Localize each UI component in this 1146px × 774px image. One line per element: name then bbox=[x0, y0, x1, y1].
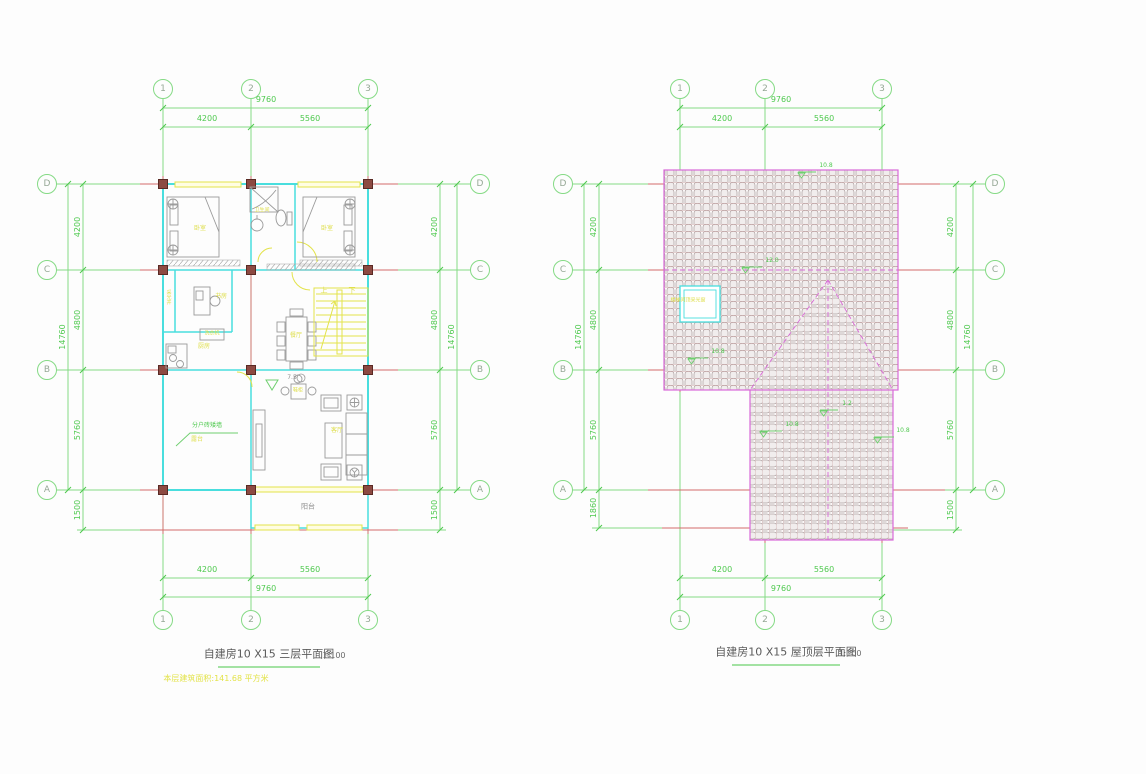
grid-bubble-col: 1 bbox=[670, 610, 690, 630]
grid-bubble-col: 3 bbox=[872, 79, 892, 99]
dim-label: 5560 bbox=[300, 115, 320, 123]
grid-bubble-col: 3 bbox=[358, 610, 378, 630]
dim-label: 14760 bbox=[59, 324, 67, 349]
sink-icon bbox=[251, 215, 263, 231]
dim-label: 4800 bbox=[431, 310, 439, 330]
side-table-lamp-icon bbox=[347, 465, 362, 480]
dim-label: 5760 bbox=[74, 420, 82, 440]
grid-bubble-col: 1 bbox=[153, 610, 173, 630]
room-label-lightwell: 采光井 bbox=[166, 290, 171, 305]
leader-line bbox=[176, 433, 238, 446]
dim-label: 4800 bbox=[590, 310, 598, 330]
grid-bubble-row: B bbox=[553, 360, 573, 380]
dim-label: 9760 bbox=[256, 96, 276, 104]
room-label-entry-cabinet: 鞋柜 bbox=[293, 389, 303, 394]
dim-label: 5760 bbox=[947, 420, 955, 440]
left-drawing-scale: 1:100 bbox=[322, 652, 345, 660]
grid-bubble-col: 2 bbox=[241, 610, 261, 630]
plant-icon bbox=[266, 380, 278, 390]
linework bbox=[0, 0, 1146, 774]
floor-plan bbox=[159, 180, 373, 531]
dim-label: 14760 bbox=[448, 324, 456, 349]
grid-bubble-row: A bbox=[553, 480, 573, 500]
dim-label: 9760 bbox=[771, 96, 791, 104]
grid-bubble-col: 1 bbox=[670, 79, 690, 99]
room-label-living: 客厅 bbox=[331, 428, 343, 434]
dim-label: 5560 bbox=[814, 566, 834, 574]
sofa-icon bbox=[321, 395, 367, 480]
roof-plan bbox=[664, 170, 898, 540]
dim-label: 5760 bbox=[431, 420, 439, 440]
room-label-dining: 餐厅 bbox=[290, 333, 302, 339]
title-underline bbox=[218, 665, 840, 667]
left-drawing-title: 自建房10 X15 三层平面图 bbox=[204, 649, 335, 660]
dim-label: 4800 bbox=[74, 310, 82, 330]
slope-label: 10.8 bbox=[711, 349, 724, 355]
column-marker bbox=[159, 180, 373, 495]
dim-label: 14760 bbox=[575, 324, 583, 349]
stair-up-label: 上 bbox=[321, 288, 328, 295]
slope-label: 10.8 bbox=[785, 422, 798, 428]
dim-label: 4800 bbox=[947, 310, 955, 330]
skylight bbox=[680, 286, 720, 322]
area-note: 本层建筑面积:141.68 平方米 bbox=[163, 675, 268, 683]
tv-cabinet-icon bbox=[253, 410, 265, 470]
level-marker-circle bbox=[297, 374, 305, 382]
skylight-label: 楼梯间顶采光窗 bbox=[670, 299, 705, 304]
dim-label: 4200 bbox=[197, 566, 217, 574]
grid-bubble-col: 2 bbox=[755, 610, 775, 630]
dim-label: 1500 bbox=[74, 500, 82, 520]
dim-label: 4200 bbox=[712, 566, 732, 574]
grid-bubble-row: D bbox=[985, 174, 1005, 194]
room-label-bedroom: 卧室 bbox=[194, 226, 206, 232]
dim-label: 4200 bbox=[590, 217, 598, 237]
grid-bubble-row: A bbox=[470, 480, 490, 500]
slope-label: 10.8 bbox=[819, 163, 832, 169]
dim-label: 1860 bbox=[590, 498, 598, 518]
desk-icon bbox=[194, 287, 220, 315]
dim-label: 5760 bbox=[590, 420, 598, 440]
grid-bubble-row: B bbox=[985, 360, 1005, 380]
dim-label: 9760 bbox=[256, 585, 276, 593]
cad-sheet: 1 2 3 1 2 3 D C B A D C B A 1 2 3 1 2 3 … bbox=[0, 0, 1146, 774]
slope-label: 12.0 bbox=[765, 258, 778, 264]
room-label-terrace: 露台 bbox=[191, 437, 203, 443]
slope-label: 1.2 bbox=[842, 401, 852, 407]
grid-bubble-col: 3 bbox=[872, 610, 892, 630]
grid-bubble-col: 1 bbox=[153, 79, 173, 99]
room-label-study: 书房 bbox=[215, 294, 227, 300]
grid-bubble-row: B bbox=[470, 360, 490, 380]
room-label-balcony: 阳台 bbox=[301, 504, 315, 511]
grid-bubble-row: A bbox=[37, 480, 57, 500]
grid-bubble-row: C bbox=[985, 260, 1005, 280]
grid-bubble-row: D bbox=[470, 174, 490, 194]
right-drawing-title: 自建房10 X15 屋顶层平面图 bbox=[715, 647, 857, 658]
leader-note: 分户砖矮墙 bbox=[192, 423, 222, 429]
dim-label: 4200 bbox=[431, 217, 439, 237]
hatch-band bbox=[167, 260, 362, 270]
right-drawing-scale: 1:100 bbox=[838, 650, 861, 658]
slope-label: 10.8 bbox=[896, 428, 909, 434]
dim-label: 14760 bbox=[964, 324, 972, 349]
grid-bubble-row: B bbox=[37, 360, 57, 380]
dim-label: 5560 bbox=[300, 566, 320, 574]
kitchen-counter-icon bbox=[166, 344, 187, 368]
dim-label: 1500 bbox=[431, 500, 439, 520]
grid-bubble-row: D bbox=[553, 174, 573, 194]
room-label-washer: 洗衣机 bbox=[204, 332, 219, 337]
room-label-bath: 卫生间 bbox=[254, 209, 269, 214]
dim-label: 4200 bbox=[74, 217, 82, 237]
grid-bubble-row: C bbox=[553, 260, 573, 280]
grid-bubble-row: C bbox=[470, 260, 490, 280]
dim-label: 4200 bbox=[197, 115, 217, 123]
dim-label: 5560 bbox=[814, 115, 834, 123]
stairs-icon bbox=[314, 288, 368, 356]
grid-bubble-row: A bbox=[985, 480, 1005, 500]
grid-bubble-row: D bbox=[37, 174, 57, 194]
grid-bubble-col: 3 bbox=[358, 79, 378, 99]
dim-label: 4200 bbox=[947, 217, 955, 237]
side-table-lamp-icon bbox=[347, 395, 362, 410]
level-marker: 7.5 bbox=[287, 375, 297, 381]
grid-bubble-row: C bbox=[37, 260, 57, 280]
dim-label: 1500 bbox=[947, 500, 955, 520]
room-label-bedroom: 卧室 bbox=[321, 226, 333, 232]
room-label-kitchen: 厨房 bbox=[198, 344, 210, 350]
dining-table-icon bbox=[277, 309, 316, 369]
stair-down-label: 下 bbox=[349, 288, 356, 295]
dim-label: 4200 bbox=[712, 115, 732, 123]
dim-label: 9760 bbox=[771, 585, 791, 593]
